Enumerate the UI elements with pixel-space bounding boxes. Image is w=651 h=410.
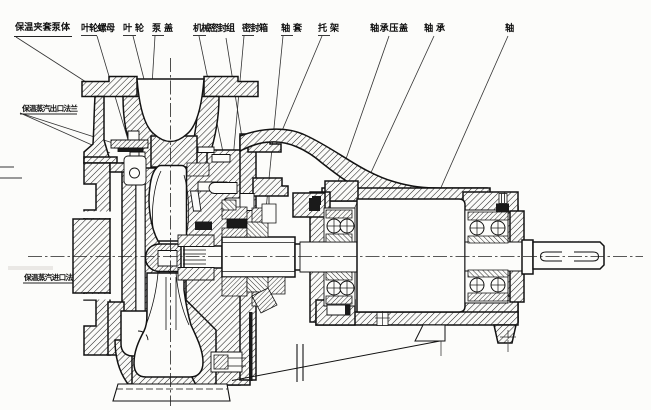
- svg-text:轴: 轴: [505, 22, 514, 33]
- svg-text:托架: 托架: [318, 22, 340, 33]
- svg-text:轴承: 轴承: [424, 22, 446, 33]
- svg-text:密封箱: 密封箱: [241, 22, 268, 33]
- svg-text:叶轮螺母: 叶轮螺母: [81, 22, 115, 33]
- svg-text:叶轮: 叶轮: [123, 22, 145, 33]
- svg-text:保温蒸汽出口法兰: 保温蒸汽出口法兰: [21, 103, 78, 113]
- svg-text:保温夹套泵体: 保温夹套泵体: [14, 21, 71, 32]
- svg-text:轴承压盖: 轴承压盖: [370, 22, 408, 33]
- svg-text:轴套: 轴套: [281, 22, 303, 33]
- svg-text:机械密封组: 机械密封组: [193, 22, 235, 33]
- svg-text:保温蒸汽进口法兰: 保温蒸汽进口法兰: [23, 272, 80, 282]
